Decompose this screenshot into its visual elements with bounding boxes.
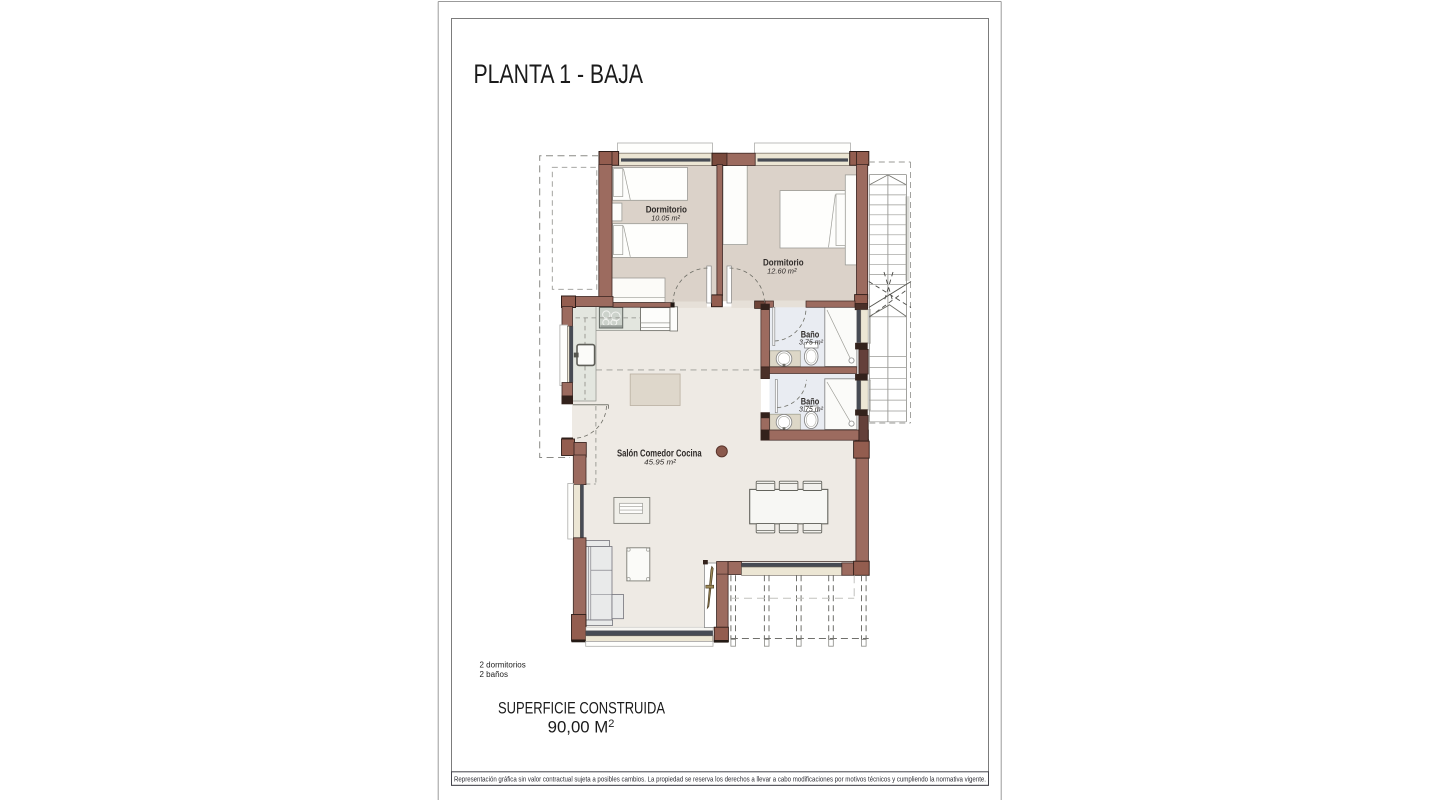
svg-text:SUPERFICIE CONSTRUIDA: SUPERFICIE CONSTRUIDA <box>498 700 665 718</box>
svg-text:12.60 m²: 12.60 m² <box>767 267 797 276</box>
svg-text:2 baños: 2 baños <box>480 670 508 679</box>
svg-text:2 dormitorios: 2 dormitorios <box>480 660 526 669</box>
svg-text:3.75 m²: 3.75 m² <box>799 405 824 414</box>
svg-text:Representación gráfica sin val: Representación gráfica sin valor contrac… <box>454 776 986 783</box>
svg-text:3.75 m²: 3.75 m² <box>799 338 824 347</box>
svg-text:10.05 m²: 10.05 m² <box>651 214 680 223</box>
svg-text:PLANTA 1 - BAJA: PLANTA 1 - BAJA <box>474 59 644 89</box>
svg-text:90,00 M2: 90,00 M2 <box>548 717 615 736</box>
svg-text:45.95 m²: 45.95 m² <box>644 457 676 466</box>
